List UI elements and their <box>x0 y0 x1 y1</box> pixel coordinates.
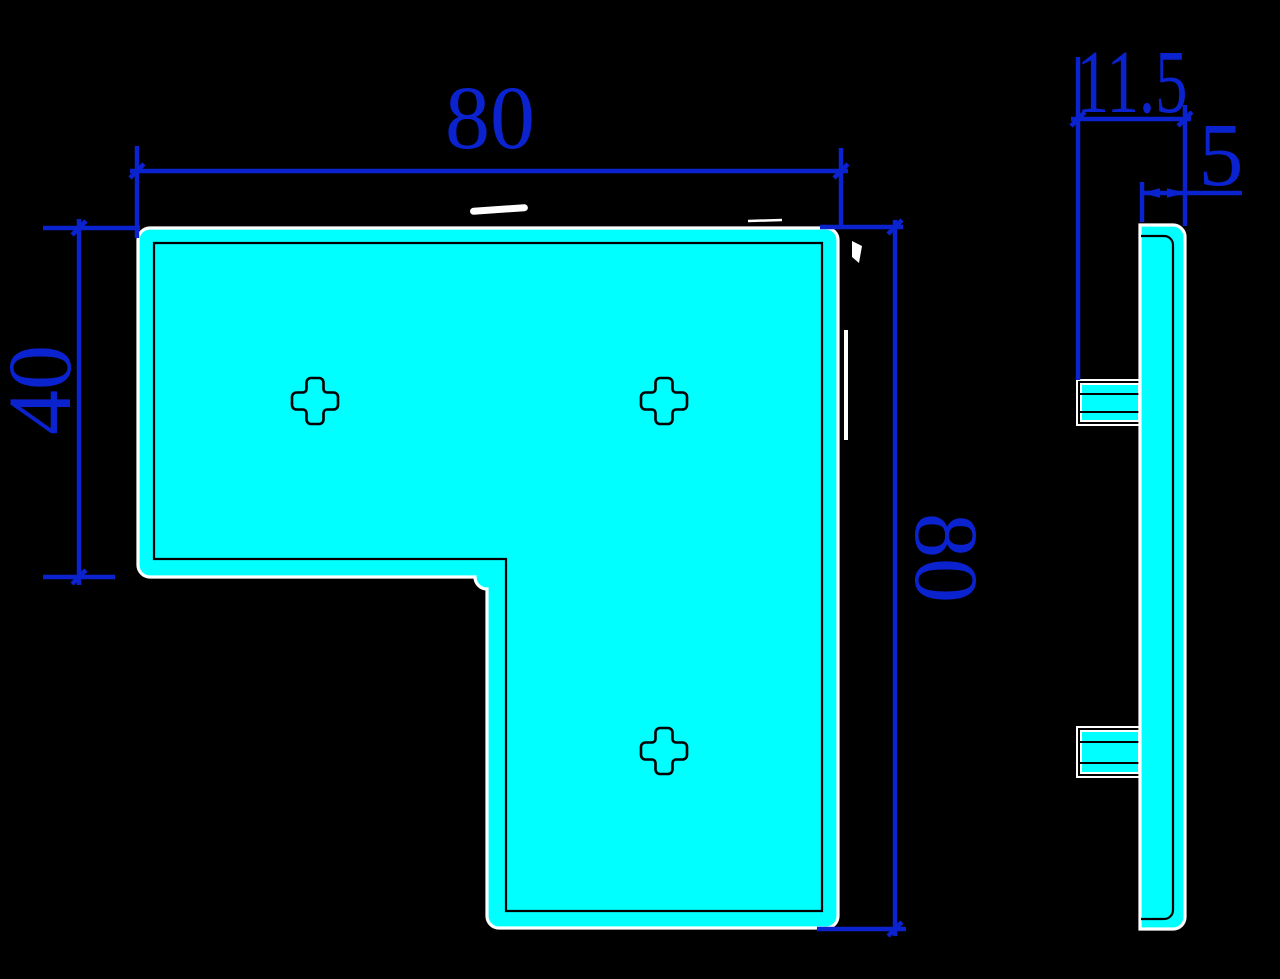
tab-outline-white <box>1079 729 1141 775</box>
dim-label-notch-height: 40 <box>0 345 90 435</box>
smudge-dash <box>748 220 782 221</box>
engineering-drawing: 80 40 80 11.5 <box>0 0 1280 979</box>
dim-height-40: 40 <box>0 219 140 585</box>
tab-outline-white <box>1079 382 1141 423</box>
dim-label-height: 80 <box>896 513 995 603</box>
dim-height-80: 80 <box>817 220 995 936</box>
smudge-dash <box>470 204 528 215</box>
side-plate-outline <box>1140 225 1185 929</box>
clip-tab-lower <box>1079 729 1141 775</box>
dim-label-thickness: 5 <box>1199 106 1244 205</box>
plate-outline <box>138 228 838 928</box>
drawing-canvas: 80 40 80 11.5 <box>0 0 1280 979</box>
front-view <box>138 228 838 928</box>
side-view <box>1079 225 1185 929</box>
clip-tab-upper <box>1079 382 1141 423</box>
dim-label-depth: 11.5 <box>1077 32 1188 132</box>
dim-label-width: 80 <box>445 69 535 168</box>
smudge-wedge <box>852 241 862 263</box>
